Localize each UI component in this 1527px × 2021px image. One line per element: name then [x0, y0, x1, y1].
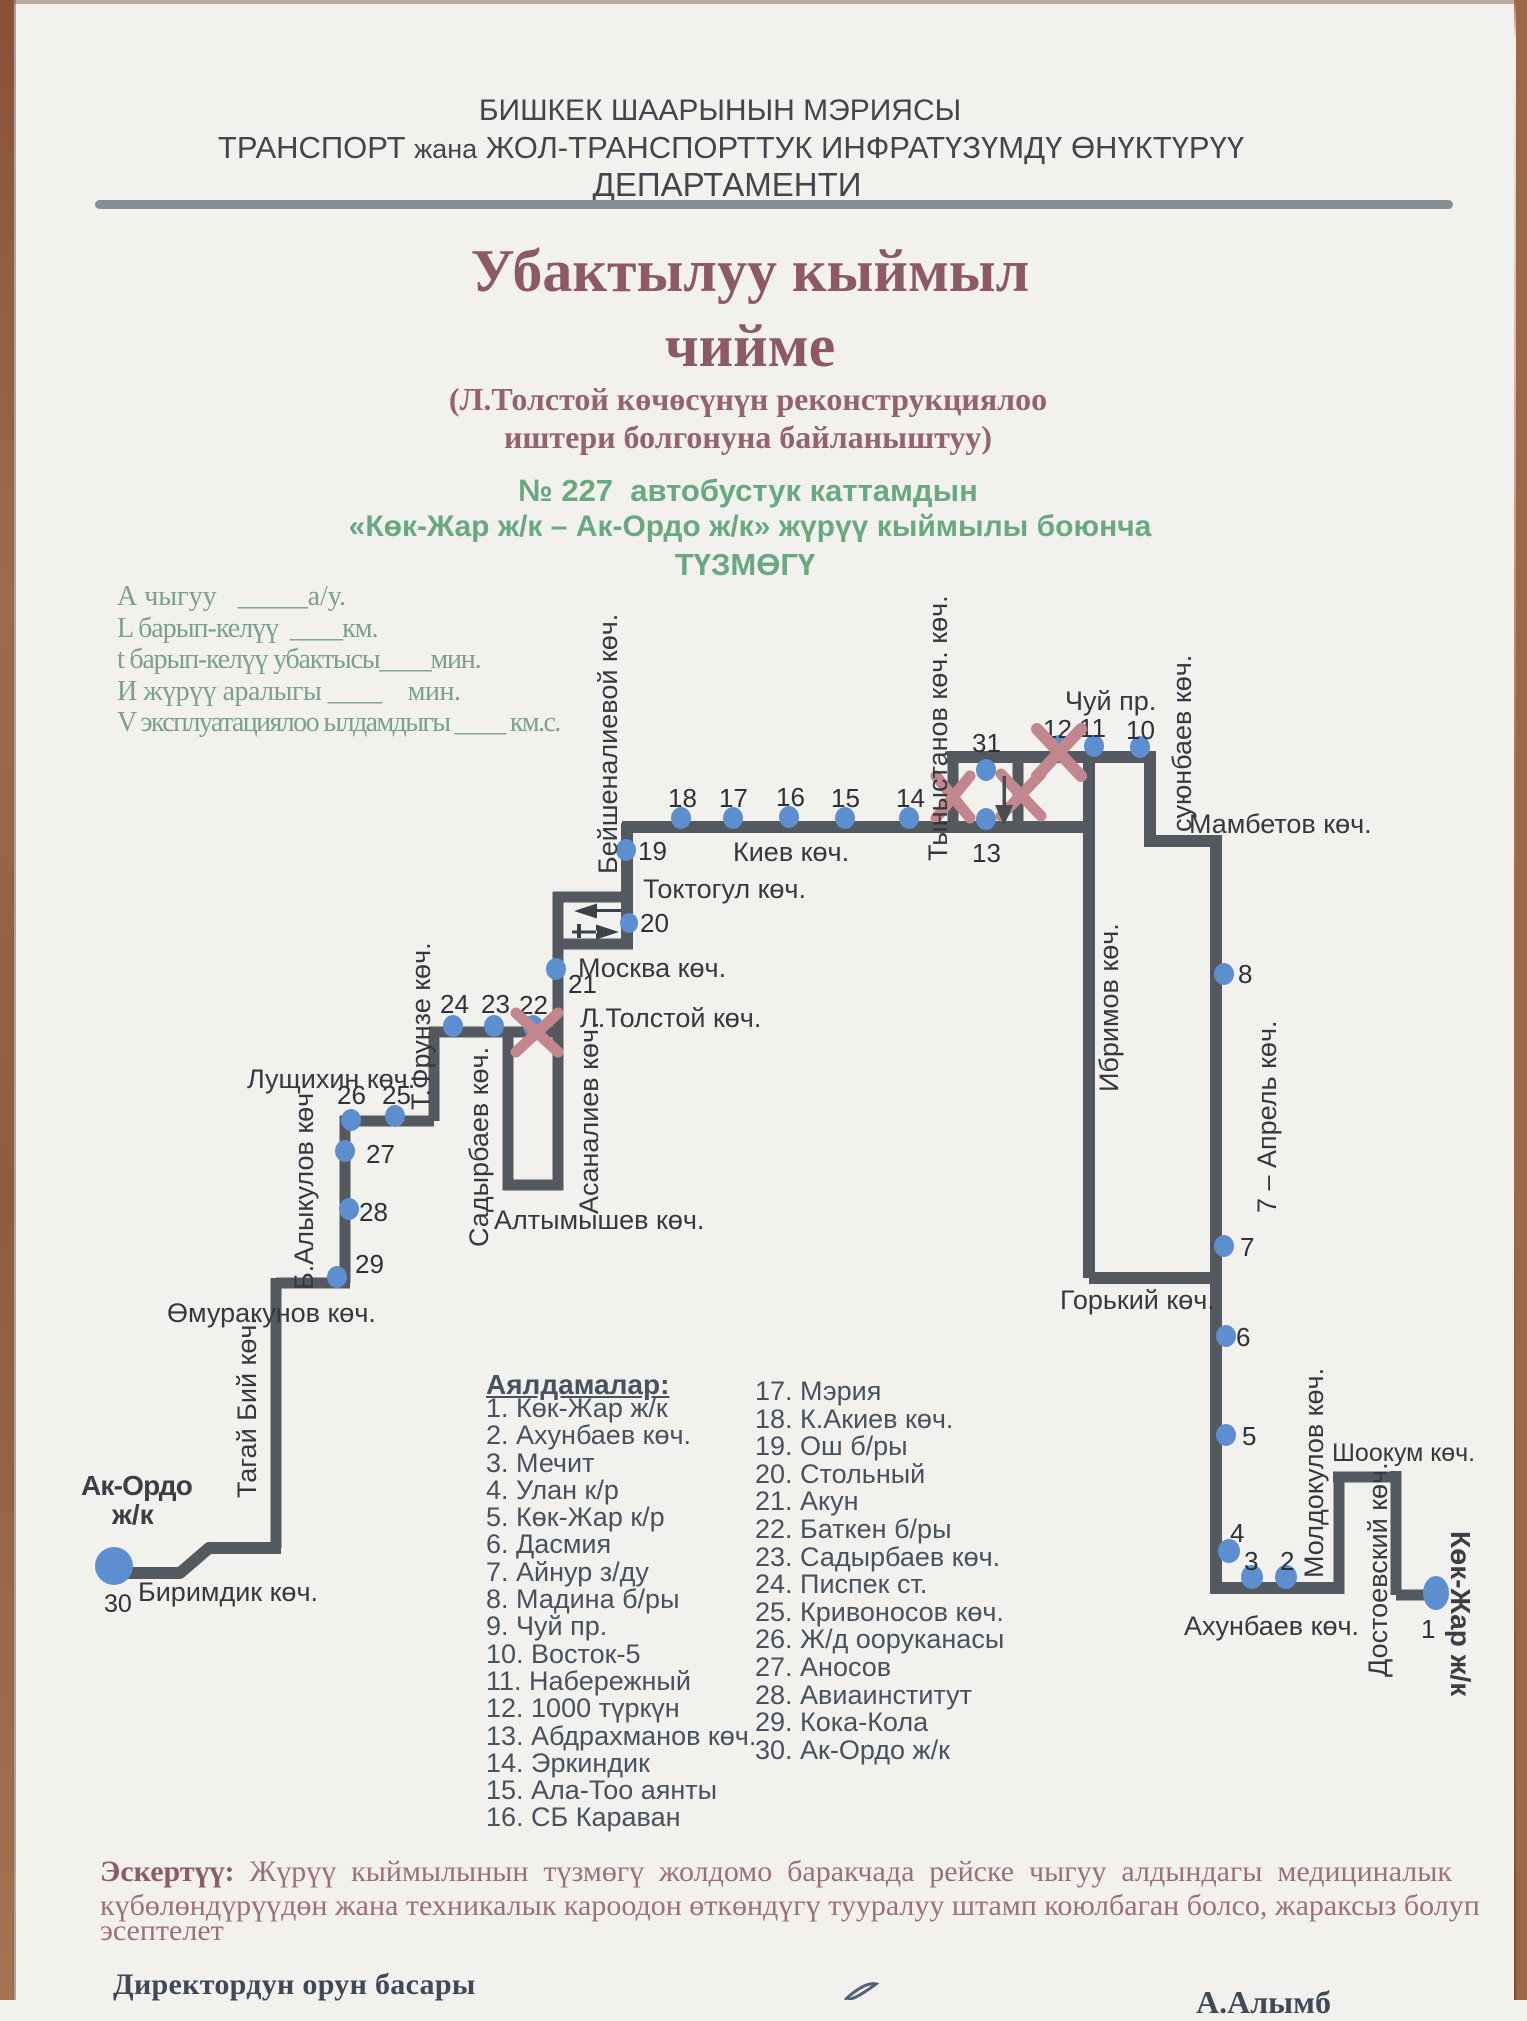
svg-text:Б.Алыкулов көч: Б.Алыкулов көч [289, 1093, 319, 1290]
svg-text:Т.Фрунзе көч.: Т.Фрунзе көч. [406, 942, 436, 1110]
svg-text:Садырбаев көч.: Садырбаев көч. [464, 1047, 494, 1247]
svg-text:28: 28 [359, 1197, 388, 1227]
svg-text:23: 23 [481, 989, 510, 1019]
svg-text:Асаналиев көч.: Асаналиев көч. [574, 1021, 604, 1214]
svg-text:Лущихин көч.: Лущихин көч. [247, 1064, 415, 1094]
svg-text:2: 2 [1280, 1546, 1294, 1576]
svg-text:Биримдик көч.: Биримдик көч. [138, 1577, 318, 1607]
svg-text:Көк-Жар ж/к: Көк-Жар ж/к [1445, 1531, 1476, 1697]
svg-text:Ибримов көч.: Ибримов көч. [1094, 923, 1124, 1092]
svg-text:13: 13 [972, 838, 1001, 868]
svg-text:20: 20 [640, 908, 669, 938]
svg-text:31: 31 [972, 728, 1001, 758]
svg-text:Токтогул көч.: Токтогул көч. [643, 874, 806, 904]
svg-text:7 – Апрель көч.: 7 – Апрель көч. [1252, 1020, 1282, 1213]
svg-text:Бейшеналиевой көч.: Бейшеналиевой көч. [593, 614, 623, 874]
svg-text:3: 3 [1244, 1546, 1258, 1576]
svg-text:Ахунбаев көч.: Ахунбаев көч. [1184, 1611, 1359, 1641]
svg-text:Тыныстанов көч. көч.: Тыныстанов көч. көч. [923, 595, 953, 861]
svg-text:Тагай Бий көч.: Тагай Бий көч. [232, 1317, 262, 1498]
svg-text:Молдокулов көч.: Молдокулов көч. [1299, 1368, 1329, 1578]
svg-text:7: 7 [1240, 1232, 1254, 1262]
svg-text:5: 5 [1242, 1421, 1256, 1451]
svg-text:17: 17 [719, 783, 748, 813]
svg-text:Мамбетов көч.: Мамбетов көч. [1189, 809, 1372, 839]
svg-text:6: 6 [1236, 1322, 1250, 1352]
svg-text:Горький көч.: Горький көч. [1060, 1285, 1215, 1315]
svg-text:Л.Толстой көч.: Л.Толстой көч. [580, 1003, 761, 1033]
svg-text:4: 4 [1230, 1518, 1244, 1548]
svg-text:29: 29 [355, 1249, 384, 1279]
svg-text:суюнбаев көч.: суюнбаев көч. [1167, 655, 1197, 832]
svg-text:1: 1 [1421, 1614, 1435, 1644]
svg-text:14: 14 [896, 783, 925, 813]
svg-text:Ак-Ордо: Ак-Ордо [81, 1470, 193, 1501]
svg-text:Шоокум көч.: Шоокум көч. [1332, 1439, 1475, 1467]
svg-text:Чуй пр.: Чуй пр. [1065, 686, 1156, 716]
svg-text:10: 10 [1126, 715, 1155, 745]
svg-text:Өмуракунов көч.: Өмуракунов көч. [167, 1298, 376, 1328]
svg-text:27: 27 [366, 1139, 395, 1169]
svg-text:18: 18 [668, 783, 697, 813]
svg-text:24: 24 [440, 989, 469, 1019]
svg-text:Достоевский көч.: Достоевский көч. [1363, 1462, 1393, 1677]
svg-text:ж/к: ж/к [111, 1499, 155, 1530]
svg-text:Москва көч.: Москва көч. [578, 953, 726, 983]
svg-text:15: 15 [831, 783, 860, 813]
svg-text:19: 19 [638, 836, 667, 866]
svg-text:30: 30 [104, 1590, 132, 1618]
svg-text:8: 8 [1238, 959, 1252, 989]
svg-text:Киев көч.: Киев көч. [733, 837, 849, 867]
svg-text:16: 16 [776, 782, 805, 812]
